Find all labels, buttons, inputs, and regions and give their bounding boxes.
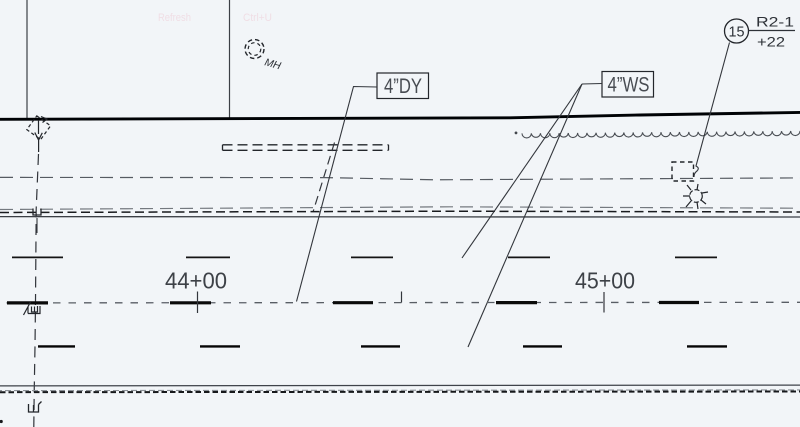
svg-text:4”DY: 4”DY [384,74,422,98]
svg-text:45+00: 45+00 [575,268,635,294]
svg-text:Refresh: Refresh [158,12,191,24]
svg-text:4”WS: 4”WS [608,73,650,97]
svg-text:Ctrl+U: Ctrl+U [243,12,272,24]
svg-text:15: 15 [729,24,745,41]
svg-text:+22: +22 [757,34,785,50]
svg-text:44+00: 44+00 [165,268,227,294]
svg-text:R2-1: R2-1 [756,14,794,30]
